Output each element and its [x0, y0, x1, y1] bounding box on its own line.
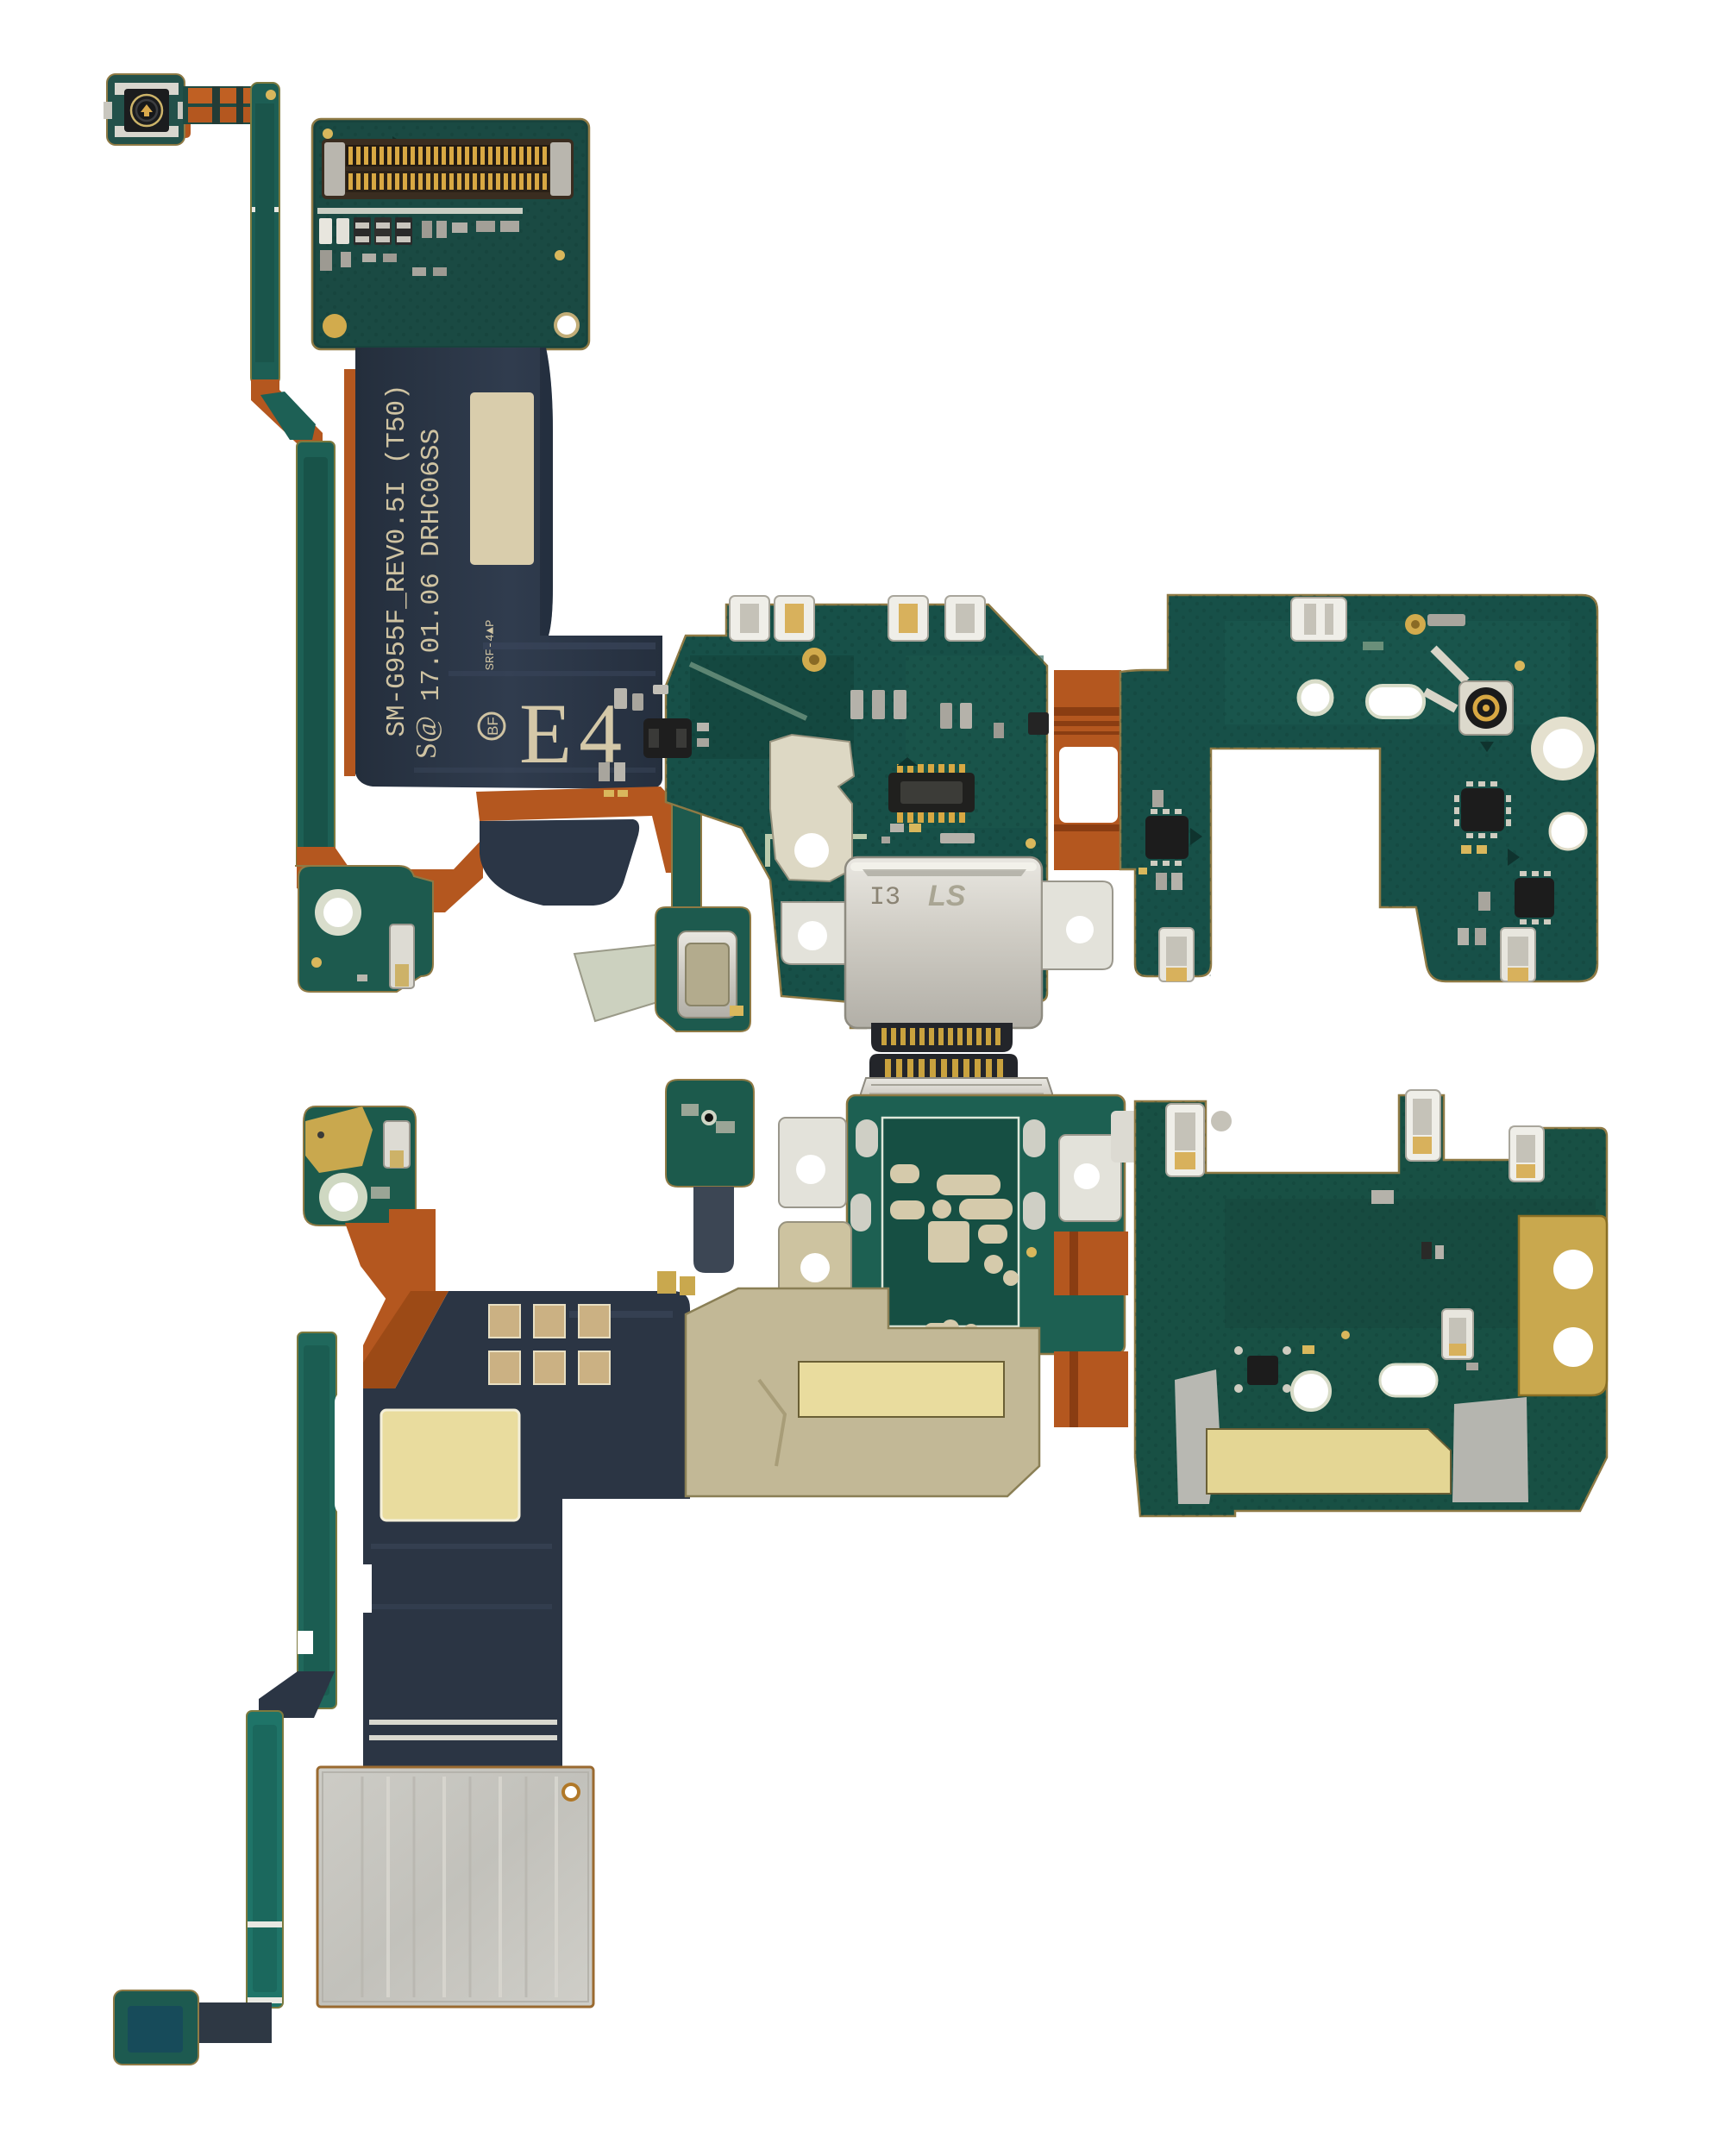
svg-text:E4: E4 — [519, 686, 629, 781]
svg-text:SM-G955F_REV0.5I (T50): SM-G955F_REV0.5I (T50) — [382, 384, 412, 736]
svg-text:SRF-4▲P: SRF-4▲P — [484, 620, 498, 671]
svg-text:LS: LS — [928, 880, 966, 912]
svg-text:17.01.06 DRHC06SS: 17.01.06 DRHC06SS — [417, 429, 447, 701]
svg-text:BF: BF — [485, 717, 501, 736]
svg-text:I3: I3 — [869, 883, 900, 912]
svg-text:S@: S@ — [411, 716, 442, 759]
